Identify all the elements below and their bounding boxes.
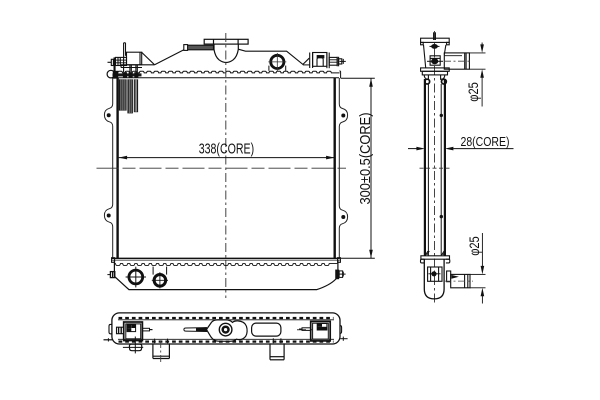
svg-text:28(CORE): 28(CORE) [461, 134, 510, 149]
svg-text:338(CORE): 338(CORE) [199, 140, 255, 157]
svg-text:300±0.5(CORE): 300±0.5(CORE) [357, 113, 374, 205]
svg-text:φ25: φ25 [467, 236, 482, 256]
svg-text:φ25: φ25 [466, 82, 481, 102]
